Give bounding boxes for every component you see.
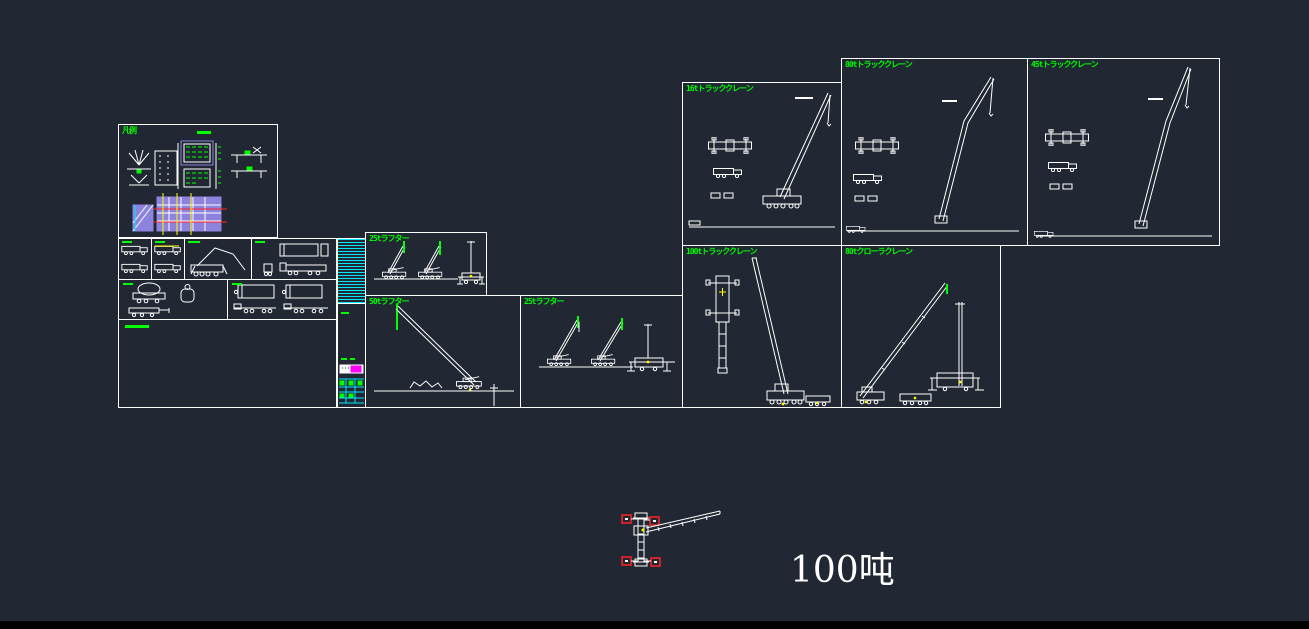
legend-panel: 凡例: [118, 124, 278, 238]
panel-title: 45tトラッククレーン: [1031, 61, 1098, 69]
panel-rafter-50t: 50tラフター: [365, 295, 521, 408]
cell-label-mark: [155, 241, 165, 243]
truck-crane-drawing: [842, 59, 1027, 245]
block-cell-trucks-1: [118, 238, 152, 280]
panel-title: 25tラフター: [524, 298, 563, 306]
panel-rafter-25t-b: 25tラフター: [520, 295, 683, 408]
titleblock-marks: [338, 239, 365, 407]
legend-sublabel-mark: [197, 131, 211, 134]
plan-view-crane-drawing: [598, 496, 778, 580]
panel-title: 50tラフター: [369, 298, 408, 306]
panel-truck-crane-16t: 16tトラッククレーン: [682, 82, 842, 246]
rafter-crane-drawing: [366, 296, 520, 407]
empty-sheet-panel: [118, 319, 337, 408]
crawler-crane-drawing: [842, 246, 1000, 407]
legend-drawing: [119, 125, 277, 237]
tonnage-text: 100吨: [790, 553, 895, 589]
truck-crane-drawing: [683, 83, 841, 245]
block-cell-mixer: [118, 279, 228, 320]
sheet-title-mark: [125, 325, 149, 328]
rafter-crane-drawing: [521, 296, 682, 407]
cad-model-canvas[interactable]: { "canvas": {"background": "#212833", "b…: [0, 0, 1309, 629]
truck-blocks-drawing: [152, 239, 184, 279]
trailer-drawing: [228, 280, 336, 319]
bottom-bar: [0, 621, 1309, 629]
panel-truck-crane-45t: 45tトラッククレーン: [1027, 58, 1220, 246]
panel-title: 16tトラッククレーン: [686, 85, 753, 93]
box-truck-drawing: [252, 239, 336, 279]
block-cell-pump-truck: [184, 238, 252, 280]
panel-truck-crane-100t: 100tトラッククレーン: [682, 245, 842, 408]
truck-crane-drawing: [683, 246, 841, 407]
block-cell-trucks-2: [151, 238, 185, 280]
legend-title: 凡例: [122, 127, 136, 135]
panel-title: 80tクローラクレーン: [845, 248, 912, 256]
panel-title: 25tラフター: [369, 235, 408, 243]
panel-rafter-25t-a: 25tラフター: [365, 232, 487, 296]
truck-blocks-drawing: [119, 239, 151, 279]
cell-label-mark: [255, 241, 265, 243]
panel-title: 80tトラッククレーン: [845, 61, 912, 69]
block-cell-box-truck: [251, 238, 337, 280]
block-cell-trailers: [227, 279, 337, 320]
titleblock-strip: [337, 238, 366, 408]
cell-label-mark: [122, 241, 132, 243]
panel-crawler-crane-80t: 80tクローラクレーン: [841, 245, 1001, 408]
mixer-truck-drawing: [119, 280, 227, 319]
cell-label-mark: [232, 283, 242, 285]
pump-truck-drawing: [185, 239, 251, 279]
cell-label-mark: [188, 241, 200, 243]
cell-label-mark: [123, 283, 133, 285]
truck-crane-drawing: [1028, 59, 1219, 245]
panel-title: 100tトラッククレーン: [686, 248, 757, 256]
panel-truck-crane-80t: 80tトラッククレーン: [841, 58, 1028, 246]
